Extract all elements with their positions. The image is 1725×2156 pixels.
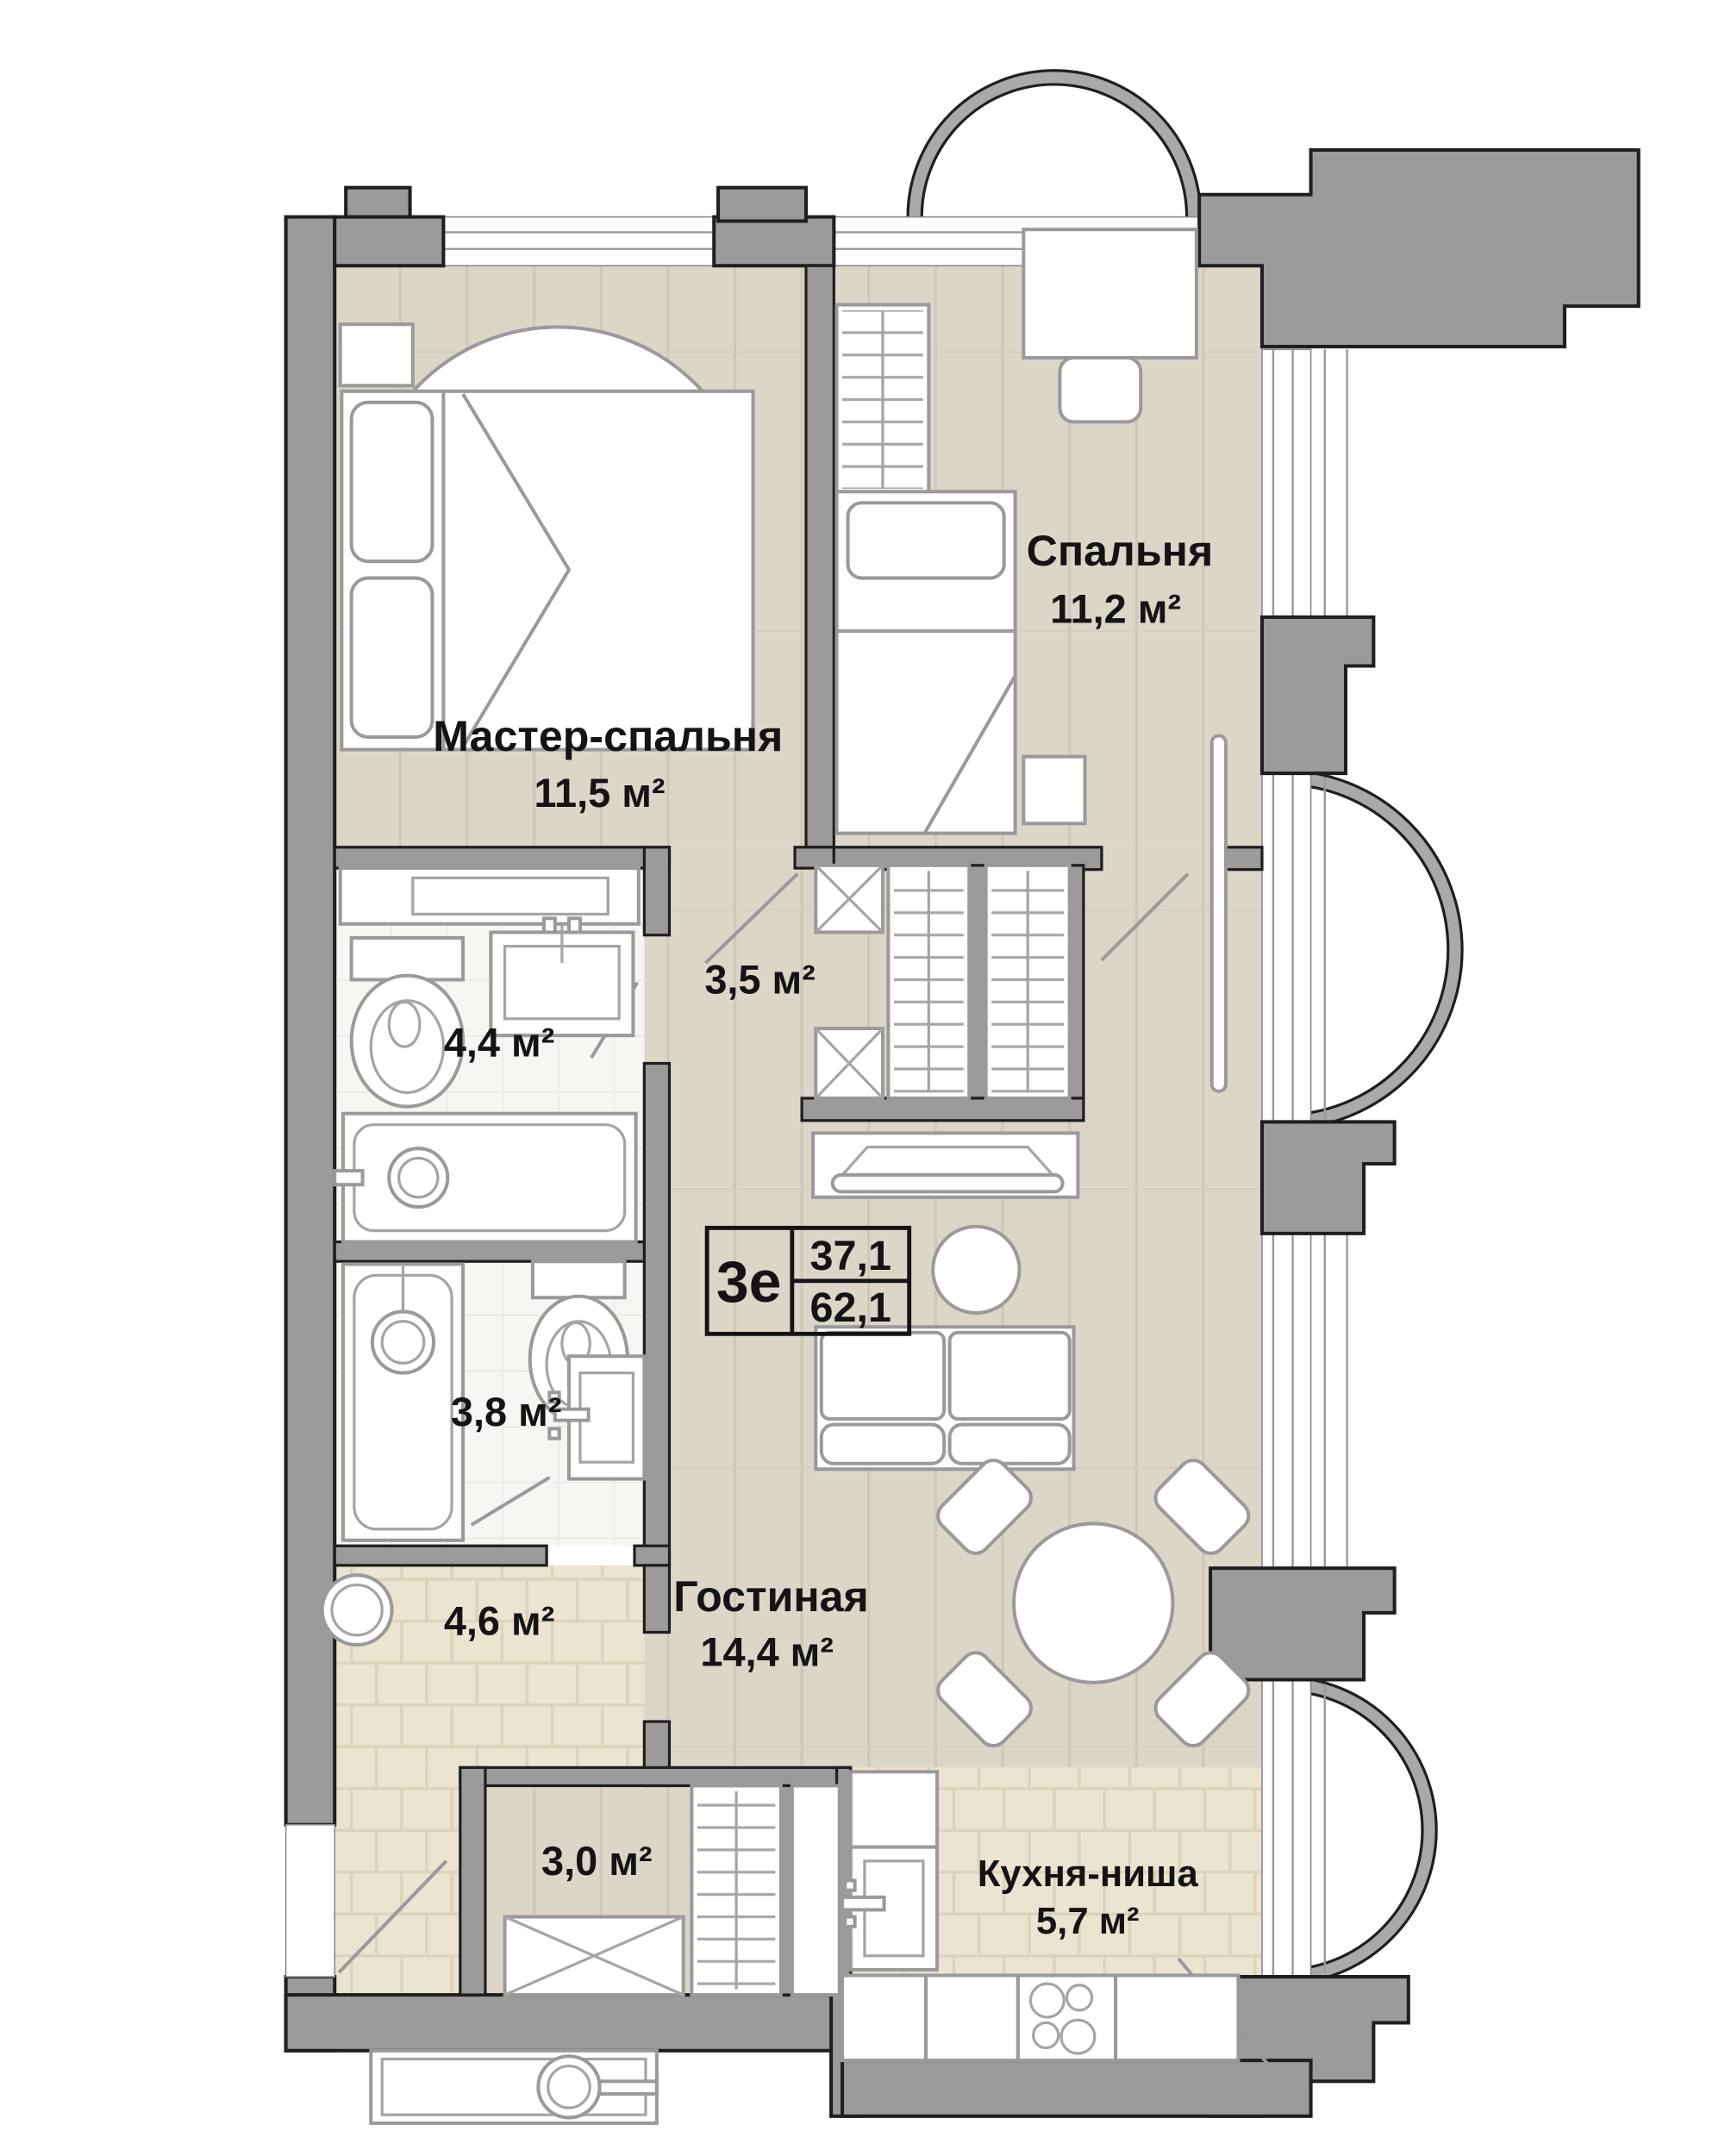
wall-bath-right-b <box>644 1064 669 1565</box>
duct-shaft <box>792 1785 840 1995</box>
sofa <box>816 1327 1073 1469</box>
stove-icon <box>1018 1975 1116 2060</box>
wall-top-a <box>334 217 443 266</box>
radiator <box>1212 735 1226 1090</box>
room-master-bedroom: Мастер-спальня 11,5 м² <box>341 324 784 816</box>
pillow <box>352 578 433 737</box>
wall-bottom-kitchen <box>842 2060 1311 2116</box>
shower-bath-icon <box>343 1264 463 1540</box>
wall-bottom-left <box>286 1995 853 2051</box>
console-bench <box>813 1133 1078 1197</box>
wall-step-top-mid <box>718 188 806 222</box>
living-area-value: 37,1 <box>810 1233 891 1279</box>
wall-closet-stub <box>969 866 985 1098</box>
kitchen-area: 5,7 м² <box>1036 1900 1140 1942</box>
pillow <box>848 503 1004 578</box>
bath-large-area: 4,4 м² <box>444 1020 555 1065</box>
living-name: Гостиная <box>673 1572 869 1621</box>
living-area: 14,4 м² <box>700 1629 834 1674</box>
wall-bath-small-bottom-b <box>634 1546 669 1565</box>
hall-area: 4,6 м² <box>444 1599 555 1644</box>
wall-wardrobe-left <box>460 1767 485 1995</box>
desk-chair <box>1059 358 1141 422</box>
wall-hall-stub-a <box>644 1565 669 1633</box>
entrance-opening <box>286 1825 335 1977</box>
counter-segment <box>851 1772 937 1847</box>
unit-type-label: 3е <box>716 1249 782 1315</box>
bedroom-wardrobe <box>837 305 929 495</box>
window-right-3 <box>1262 1234 1347 1568</box>
desk <box>1023 229 1197 358</box>
corridor-area: 3,5 м² <box>704 958 816 1003</box>
exterior-unit <box>371 2051 657 2123</box>
wall-bath-small-bottom-a <box>334 1546 547 1565</box>
crossed-box <box>816 866 883 933</box>
sink-icon <box>491 918 633 1035</box>
crossed-box <box>505 1917 684 1996</box>
wall-pier-right-2 <box>1262 1122 1395 1233</box>
counter-segment <box>1116 1975 1238 2060</box>
wall-left-upper <box>286 217 335 1825</box>
wall-wardrobe-top <box>460 1767 851 1785</box>
outdoor-unit-pipe <box>600 2081 657 2094</box>
hall-floor-strip <box>334 1767 460 1995</box>
wall-between-baths <box>334 1242 644 1262</box>
dining-table <box>1014 1523 1172 1682</box>
bathtub-icon <box>334 1114 635 1242</box>
shelf <box>341 868 639 924</box>
bedroom-name: Спальня <box>1027 527 1214 575</box>
coffee-table <box>933 1227 1019 1313</box>
kitchen-name: Кухня-ниша <box>978 1853 1199 1895</box>
window-right-1 <box>1262 349 1347 617</box>
counter-segment <box>926 1975 1018 2060</box>
wall-closet-bottom <box>802 1098 1084 1121</box>
wardrobe-area: 3,0 м² <box>541 1839 653 1884</box>
kitchen-cabinet-door-icon <box>842 1847 937 1970</box>
crossed-box <box>816 1028 883 1098</box>
wardrobe-rails <box>691 1785 781 1995</box>
bath-small-area: 3,8 м² <box>451 1390 562 1434</box>
counter-segment <box>842 1975 926 2060</box>
closet-rails-left <box>888 866 969 1098</box>
window-master-top <box>443 217 714 266</box>
window-right-2 <box>1262 773 1325 1122</box>
master-bedroom-name: Мастер-спальня <box>433 712 783 760</box>
master-bedroom-area: 11,5 м² <box>534 771 666 816</box>
wall-pier-right-1 <box>1262 617 1373 773</box>
wall-top-b <box>714 217 834 266</box>
total-area-value: 62,1 <box>810 1284 891 1331</box>
bedroom-area: 11,2 м² <box>1050 586 1181 631</box>
closet-rails-right <box>986 866 1070 1098</box>
wall-block-topright <box>1199 150 1639 347</box>
wall-closet-right <box>1070 866 1084 1098</box>
window-right-4 <box>1262 1680 1325 1978</box>
floor-plan-page: Мастер-спальня 11,5 м² Спальня 11,2 м² <box>0 0 1725 2156</box>
nightstand <box>341 324 413 385</box>
wall-bath-right-a <box>644 847 669 935</box>
wall-under-master <box>334 847 669 868</box>
wall-master-bedroom-divider <box>806 266 834 847</box>
wall-pier-right-3 <box>1210 1568 1395 1679</box>
balcony-top <box>908 71 1201 217</box>
pillow <box>352 403 433 561</box>
floor-plan: Мастер-спальня 11,5 м² Спальня 11,2 м² <box>0 0 1725 2156</box>
nightstand <box>1023 757 1084 824</box>
